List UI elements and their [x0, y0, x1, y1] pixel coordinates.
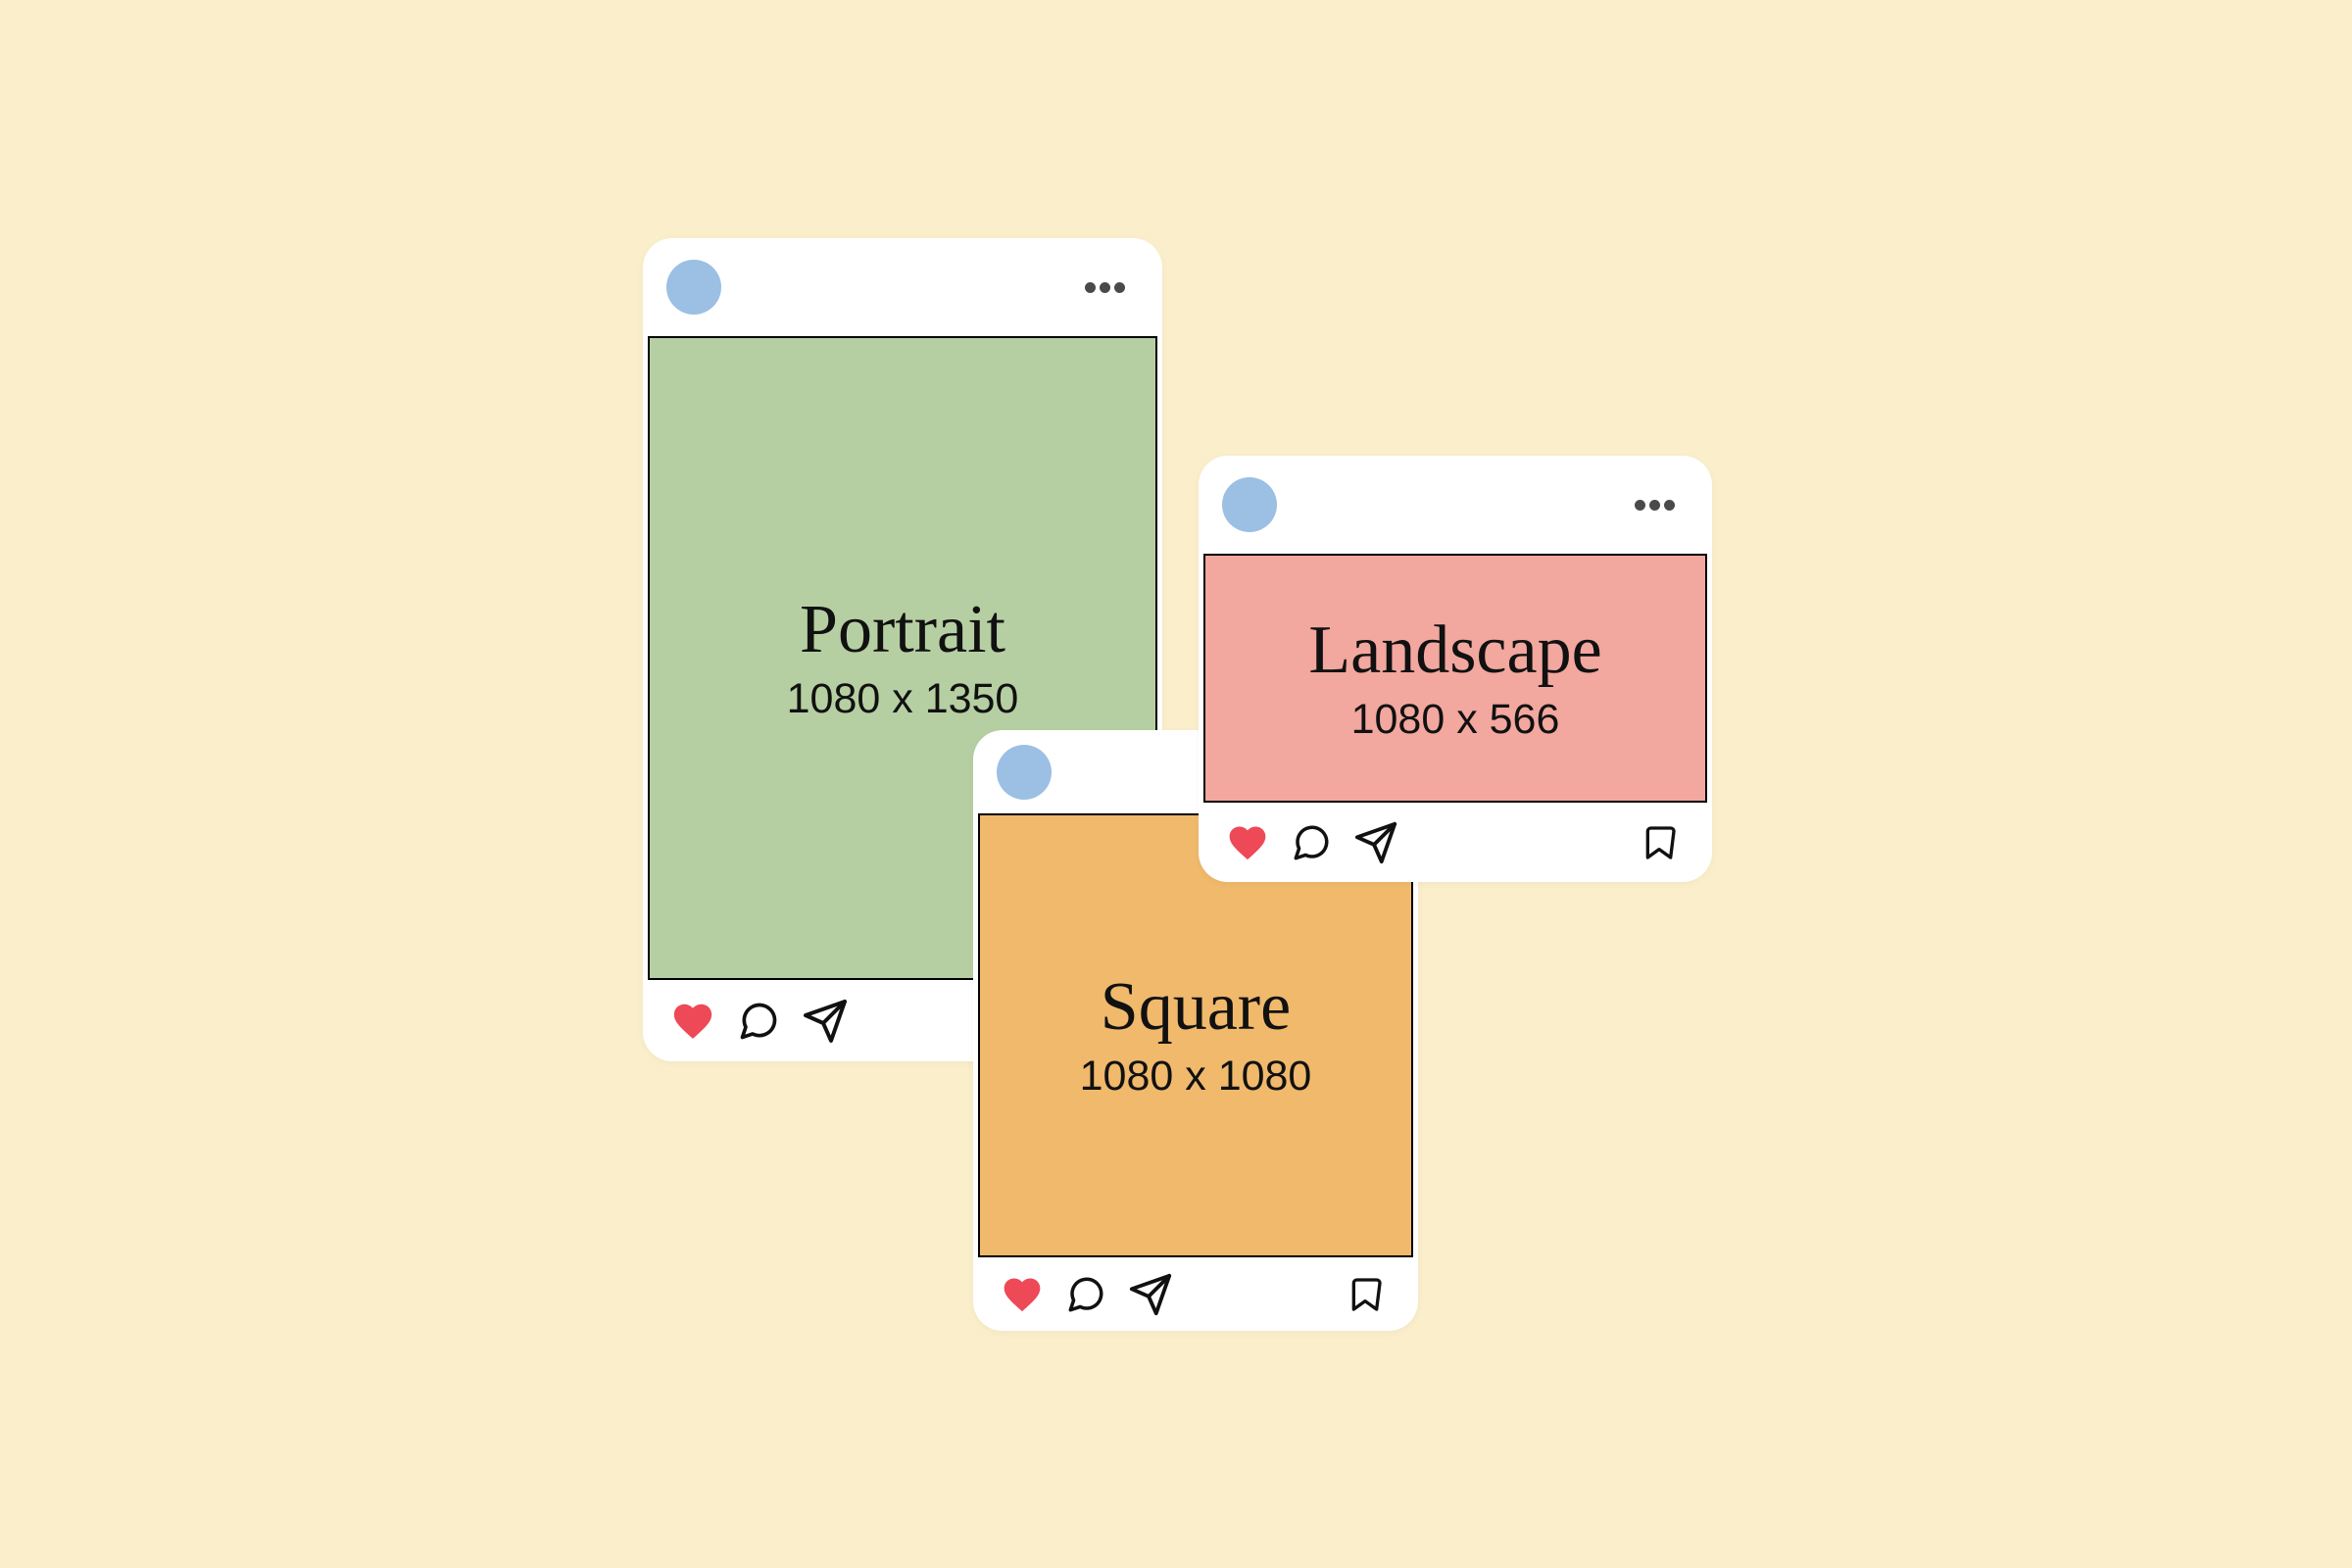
post-dimensions: 1080 x 1350: [787, 678, 1019, 720]
avatar: [1222, 477, 1277, 532]
post-dimensions: 1080 x 566: [1351, 699, 1560, 741]
post-actions: [1199, 803, 1712, 882]
send-icon[interactable]: [1128, 1272, 1173, 1317]
heart-icon[interactable]: [670, 999, 715, 1044]
comment-icon[interactable]: [1291, 822, 1332, 863]
bookmark-icon[interactable]: [1346, 1273, 1385, 1316]
post-actions: [973, 1257, 1418, 1331]
instagram-post-size-mockups: Portrait 1080 x 1350 Square 1080 x 1080: [0, 0, 2352, 1568]
post-title: Landscape: [1308, 616, 1601, 685]
post-dimensions: 1080 x 1080: [1080, 1055, 1312, 1098]
send-icon[interactable]: [1353, 820, 1398, 865]
comment-icon[interactable]: [1065, 1274, 1106, 1315]
post-card-landscape: Landscape 1080 x 566: [1199, 456, 1712, 882]
more-options-icon[interactable]: [1635, 500, 1675, 511]
more-options-icon[interactable]: [1085, 282, 1125, 293]
heart-icon[interactable]: [1001, 1273, 1044, 1316]
post-header: [643, 238, 1162, 336]
post-title: Portrait: [800, 596, 1005, 664]
avatar: [997, 745, 1052, 800]
heart-icon[interactable]: [1226, 821, 1269, 864]
avatar: [666, 260, 721, 315]
send-icon[interactable]: [802, 998, 849, 1045]
bookmark-icon[interactable]: [1640, 820, 1679, 865]
post-image: Landscape 1080 x 566: [1203, 554, 1707, 803]
post-title: Square: [1101, 973, 1291, 1042]
post-header: [1199, 456, 1712, 554]
comment-icon[interactable]: [737, 1000, 780, 1043]
